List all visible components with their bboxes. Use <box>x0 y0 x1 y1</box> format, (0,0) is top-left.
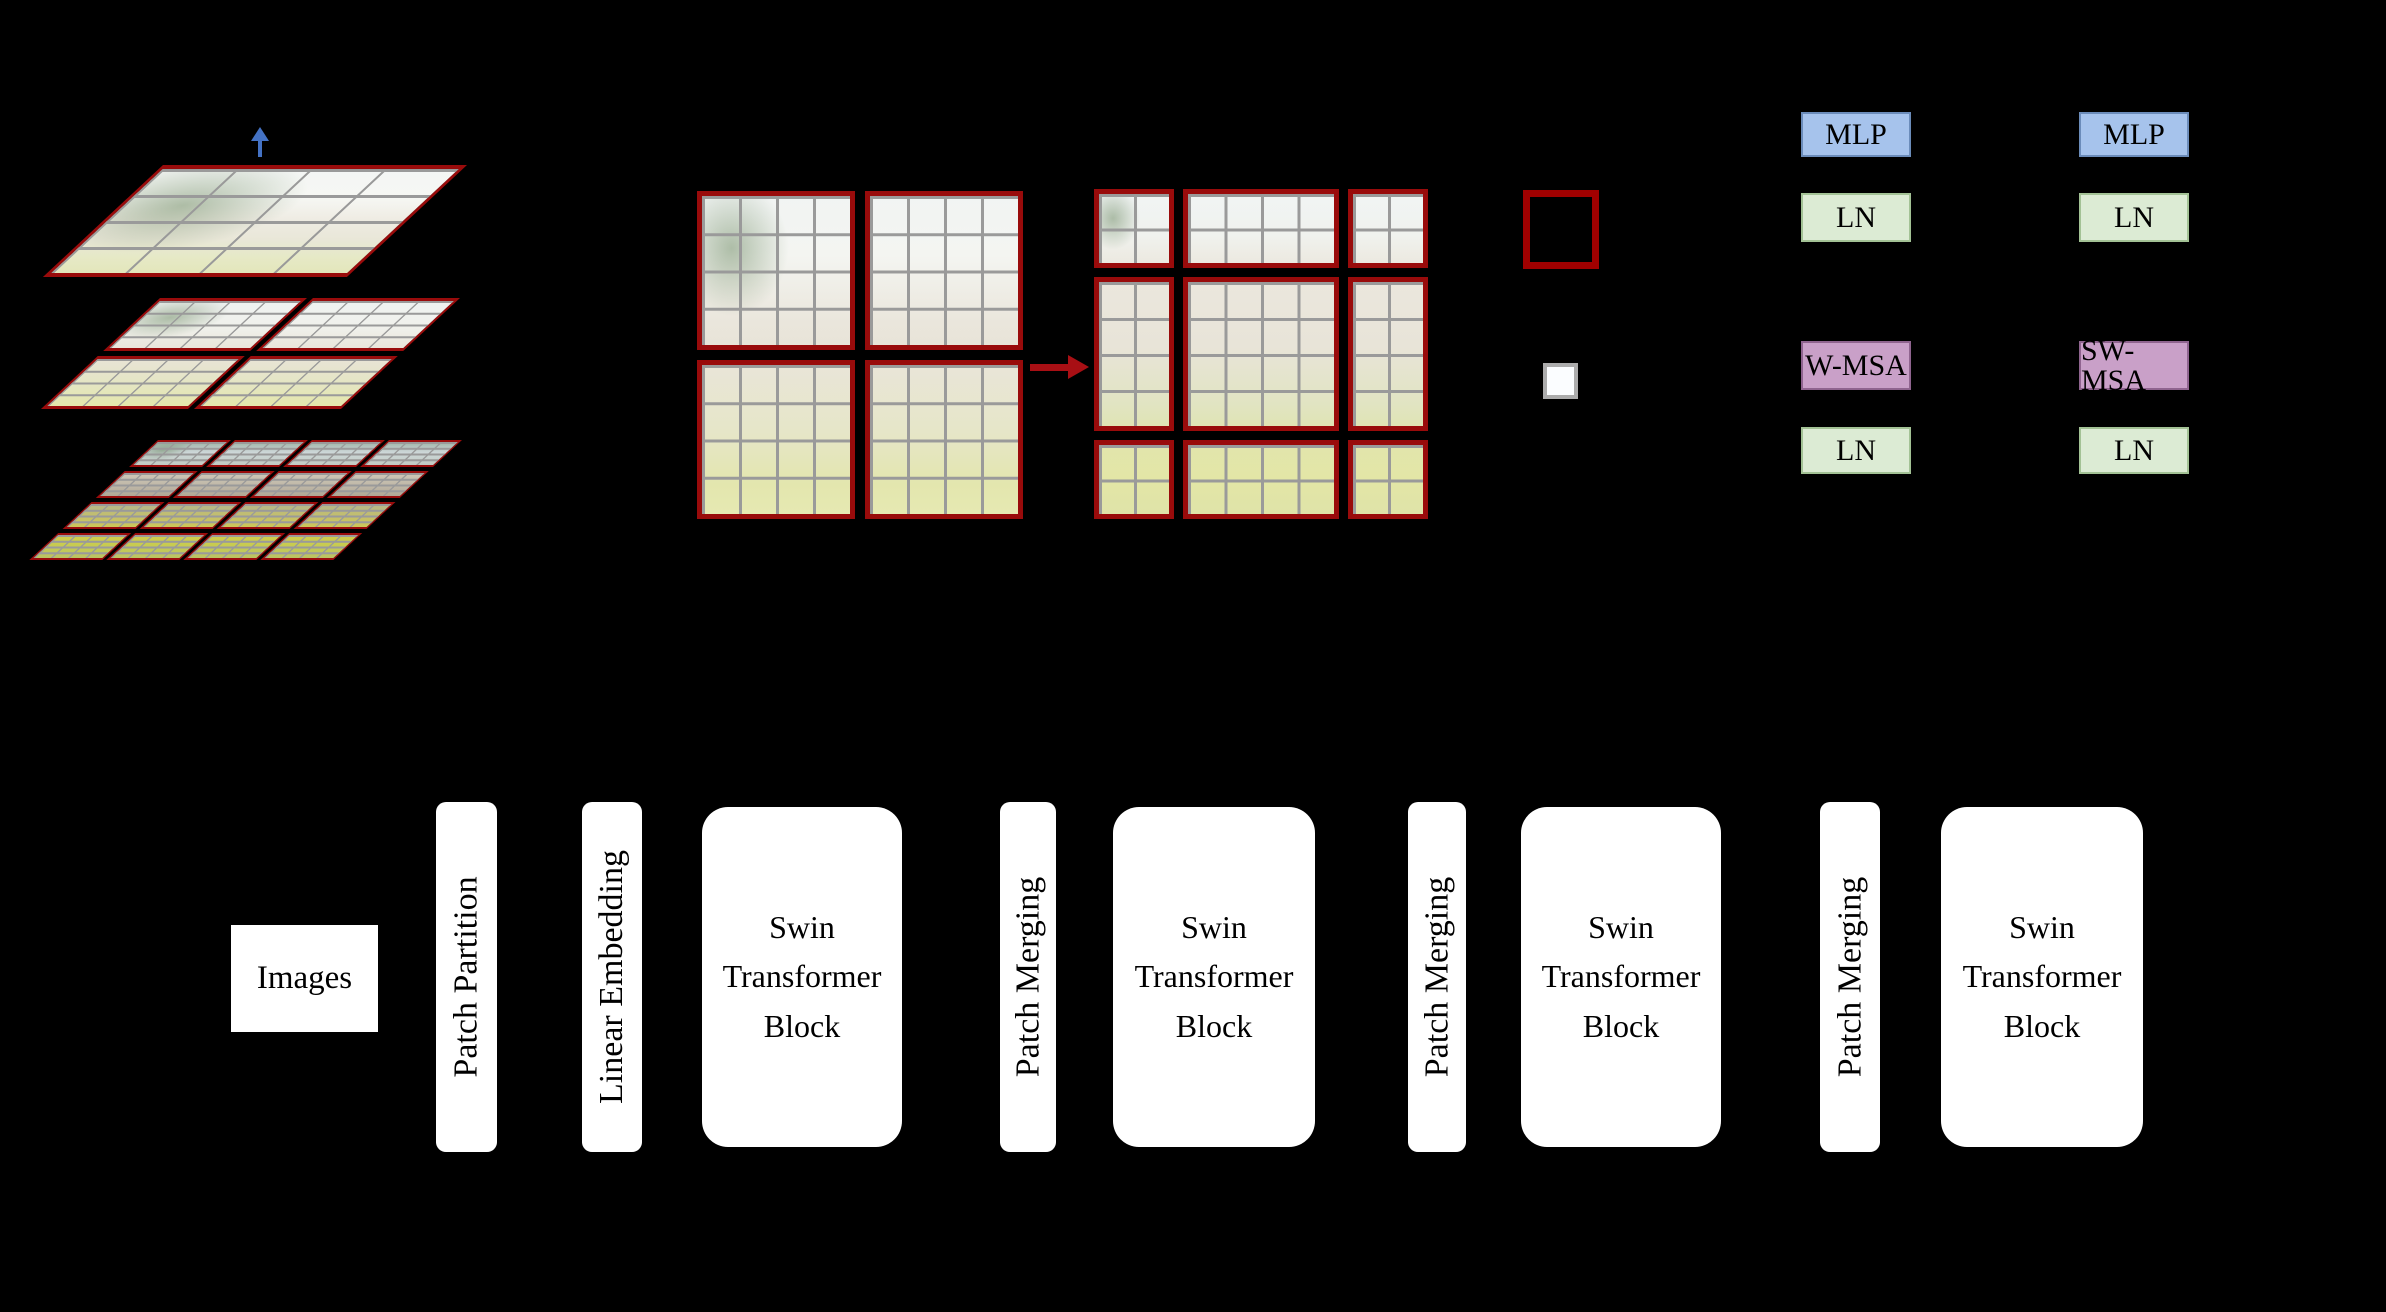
patch-legend-swatch <box>1543 363 1578 399</box>
sw-msa-box: SW-MSA <box>2079 341 2189 390</box>
patch-partition-label: Patch Partition <box>448 876 486 1077</box>
patch-partition-bar: Patch Partition <box>436 802 497 1152</box>
ln-box: LN <box>2079 427 2189 474</box>
window <box>1183 189 1339 268</box>
swin-transformer-block-1: Swin Transformer Block <box>702 807 902 1147</box>
window <box>1348 189 1428 268</box>
images-box: Images <box>231 925 378 1032</box>
linear-embedding-bar: Linear Embedding <box>582 802 642 1152</box>
window <box>697 360 855 519</box>
patch-merging-label: Patch Merging <box>1009 877 1047 1078</box>
w-msa-box: W-MSA <box>1801 341 1911 390</box>
window <box>865 191 1023 350</box>
ln-box: LN <box>1801 193 1911 242</box>
window <box>1183 277 1339 431</box>
shifted-window-grid <box>1094 189 1428 519</box>
linear-embedding-label: Linear Embedding <box>593 850 631 1104</box>
window <box>865 360 1023 519</box>
swin-transformer-block-3: Swin Transformer Block <box>1521 807 1721 1147</box>
patch-merging-label: Patch Merging <box>1418 877 1456 1078</box>
feature-layer-coarse <box>43 165 467 277</box>
window <box>1094 440 1174 519</box>
patch-merging-bar-2: Patch Merging <box>1408 802 1466 1152</box>
window-legend-swatch <box>1523 190 1599 269</box>
window <box>1094 189 1174 268</box>
ln-box: LN <box>2079 193 2189 242</box>
ln-box: LN <box>1801 427 1911 474</box>
swin-transformer-block-2: Swin Transformer Block <box>1113 807 1315 1147</box>
window-partition-grid <box>697 191 1023 519</box>
patch-merging-bar-1: Patch Merging <box>1000 802 1056 1152</box>
patch-merging-bar-3: Patch Merging <box>1820 802 1880 1152</box>
window <box>1348 440 1428 519</box>
mlp-box: MLP <box>2079 112 2189 157</box>
window <box>1348 277 1428 431</box>
right-arrow-shaft <box>1030 364 1070 371</box>
feature-layer-fine <box>26 440 463 563</box>
swin-transformer-architecture-figure: MLP LN W-MSA LN MLP LN SW-MSA LN Images … <box>0 0 2386 1312</box>
patch-merging-label: Patch Merging <box>1831 877 1869 1078</box>
swin-transformer-block-4: Swin Transformer Block <box>1941 807 2143 1147</box>
window <box>1094 277 1174 431</box>
window <box>1183 440 1339 519</box>
up-arrow-shaft <box>258 139 262 157</box>
window <box>697 191 855 350</box>
right-arrow-head <box>1068 355 1089 379</box>
window <box>43 165 467 277</box>
feature-layer-medium <box>41 298 460 409</box>
mlp-box: MLP <box>1801 112 1911 157</box>
